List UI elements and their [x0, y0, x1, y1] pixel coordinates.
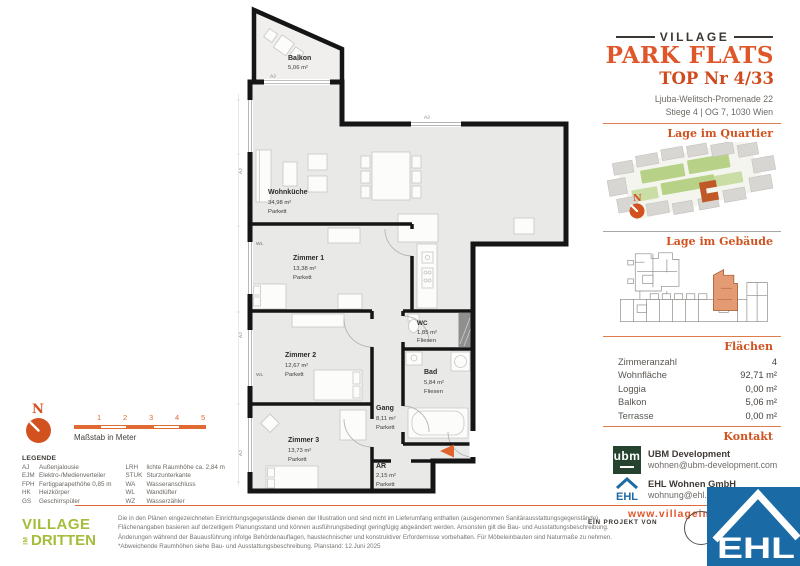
scale-bar: 1 2 3 4 5 Maßstab in Meter	[74, 413, 206, 442]
legend: LEGENDE AJAußenjalousie EJMElektro-/Medi…	[22, 455, 225, 506]
legend-text: Wasserzähler	[146, 498, 184, 505]
legend-text: Sturzunterkante	[146, 472, 190, 479]
ehl-logo-text: EHL	[717, 532, 795, 565]
compass-north-icon	[25, 417, 52, 444]
section-title-kontakt: Kontakt	[603, 430, 781, 443]
section-title-flaechen: Flächen	[603, 340, 781, 353]
svg-text:Parkett: Parkett	[268, 209, 287, 215]
svg-text:Fliesen: Fliesen	[417, 338, 436, 344]
quartier-map: N	[603, 142, 781, 226]
unit-title: TOP Nr 4/33	[603, 69, 781, 88]
expose-page: AJ AJ AJ AJ AJ WL WL Balkon 5,06 m² Wohn…	[0, 0, 800, 566]
svg-text:Zimmer 2: Zimmer 2	[285, 352, 316, 359]
svg-text:8,11 m²: 8,11 m²	[376, 416, 396, 422]
plan-compass: N	[22, 402, 54, 449]
address-line2: Stiege 4 | OG 7, 1030 Wien	[603, 106, 773, 118]
brand-title: PARK FLATS	[603, 44, 781, 67]
svg-text:12,67 m²: 12,67 m²	[285, 363, 308, 369]
areas-table: Zimmeranzahl4 Wohnfläche92,71 m² Loggia0…	[603, 357, 781, 421]
svg-text:Gang: Gang	[376, 405, 394, 412]
legend-abbr: STUK	[125, 472, 146, 480]
svg-text:Zimmer 3: Zimmer 3	[288, 437, 319, 444]
highlighted-unit	[713, 269, 737, 310]
scale-segments	[74, 425, 206, 429]
ubm-name: UBM Development	[648, 449, 777, 459]
scale-label: Maßstab in Meter	[74, 433, 206, 442]
svg-text:AR: AR	[376, 463, 386, 470]
svg-text:Parkett: Parkett	[288, 457, 307, 463]
balcony-floor	[254, 10, 342, 82]
legend-title: LEGENDE	[22, 455, 225, 462]
area-label: Terrasse	[618, 411, 654, 421]
project-by-label: EIN PROJEKT VON	[588, 519, 657, 526]
room-label-gang: Gang 8,11 m² Parkett	[376, 405, 396, 431]
aj-label: AJ	[424, 115, 430, 121]
area-value: 5,06 m²	[745, 397, 777, 407]
svg-text:1,85 m²: 1,85 m²	[417, 330, 437, 336]
aj-label: AJ	[238, 450, 244, 456]
legend-abbr: EJM	[22, 472, 39, 480]
legend-abbr: AJ	[22, 464, 39, 472]
area-row: Zimmeranzahl4	[618, 357, 777, 367]
area-label: Loggia	[618, 384, 646, 394]
svg-text:Parkett: Parkett	[285, 372, 304, 378]
svg-text:Parkett: Parkett	[376, 425, 395, 431]
svg-text:Bad: Bad	[424, 369, 437, 376]
wl-label: WL	[256, 372, 264, 378]
ehl-logo-large: EHL	[707, 487, 800, 566]
legend-text: Fertigparapethöhe 0,85 m	[39, 481, 111, 488]
village-im-dritten-logo: VILLAGE IM DRITTEN	[22, 517, 96, 548]
svg-text:5,06 m²: 5,06 m²	[288, 65, 308, 71]
aj-label: AJ	[238, 332, 244, 338]
floor-plan: AJ AJ AJ AJ AJ WL WL Balkon 5,06 m² Wohn…	[226, 4, 574, 502]
area-value: 4	[772, 357, 777, 367]
svg-text:34,98 m²: 34,98 m²	[268, 200, 291, 206]
divider	[603, 123, 781, 124]
svg-text:Fliesen: Fliesen	[424, 389, 443, 395]
svg-text:2,15 m²: 2,15 m²	[376, 473, 396, 479]
legend-text: Wasseranschluss	[146, 481, 195, 488]
scale-tick: 4	[175, 413, 179, 422]
svg-text:Zimmer 1: Zimmer 1	[293, 255, 324, 262]
compass-n-label: N	[22, 402, 54, 417]
legend-text: Elektro-/Medienverteiler	[39, 472, 106, 479]
ehl-logo-small: EHL	[613, 476, 641, 504]
legend-abbr: WL	[125, 489, 146, 497]
scale-ticks: 1 2 3 4 5	[74, 413, 206, 422]
legend-column-2: LRHlichte Raumhöhe ca. 2,84 m STUKSturzu…	[125, 464, 224, 506]
svg-text:Parkett: Parkett	[376, 482, 395, 488]
shaft	[459, 313, 472, 347]
brand-line	[616, 36, 655, 38]
legend-abbr: HK	[22, 489, 39, 497]
divider	[603, 231, 781, 232]
ubm-email[interactable]: wohnen@ubm-development.com	[648, 460, 777, 470]
area-row: Terrasse0,00 m²	[618, 411, 777, 421]
footer-divider	[75, 505, 781, 506]
legend-text: lichte Raumhöhe ca. 2,84 m	[146, 464, 224, 471]
brand-line	[734, 36, 773, 38]
svg-text:5,84 m²: 5,84 m²	[424, 380, 444, 386]
info-panel: VILLAGE PARK FLATS TOP Nr 4/33 Ljuba-Wel…	[603, 0, 781, 520]
svg-text:WC: WC	[417, 320, 428, 327]
divider	[603, 336, 781, 337]
section-title-gebaeude: Lage im Gebäude	[603, 235, 781, 248]
area-value: 0,00 m²	[745, 384, 777, 394]
svg-text:Balkon: Balkon	[288, 55, 311, 62]
aj-label: AJ	[238, 168, 244, 174]
legend-abbr: LRH	[125, 464, 146, 472]
scale-tick: 3	[149, 413, 153, 422]
svg-text:Parkett: Parkett	[293, 275, 312, 281]
vid-logo-im: IM	[23, 536, 30, 545]
legend-text: Heizkörper	[39, 489, 69, 496]
legend-column-1: AJAußenjalousie EJMElektro-/Medienvertei…	[22, 464, 111, 506]
legend-abbr: FPH	[22, 481, 39, 489]
scale-tick: 2	[123, 413, 127, 422]
svg-text:Wohnküche: Wohnküche	[268, 189, 308, 196]
area-label: Wohnfläche	[618, 370, 667, 380]
legend-text: Außenjalousie	[39, 464, 79, 471]
vid-logo-line1: VILLAGE	[22, 517, 96, 532]
area-value: 0,00 m²	[745, 411, 777, 421]
scale-tick: 5	[201, 413, 205, 422]
disclaimer-text: Die in den Plänen eingezeichneten Einric…	[118, 514, 638, 551]
area-row: Loggia0,00 m²	[618, 384, 777, 394]
area-value: 92,71 m²	[740, 370, 777, 380]
address-line1: Ljuba-Welitsch-Promenade 22	[603, 93, 773, 105]
building-map	[603, 251, 781, 331]
svg-text:EHL: EHL	[616, 491, 638, 503]
map-compass-n-label: N	[633, 193, 642, 204]
section-title-quartier: Lage im Quartier	[603, 127, 781, 140]
divider	[603, 426, 781, 427]
area-row: Wohnfläche92,71 m²	[618, 370, 777, 380]
legend-text: Wandlüfter	[146, 489, 176, 496]
legend-text: Geschirrspüler	[39, 498, 80, 505]
legend-abbr: GS	[22, 498, 39, 506]
area-row: Balkon5,06 m²	[618, 397, 777, 407]
legend-abbr: WA	[125, 481, 146, 489]
address: Ljuba-Welitsch-Promenade 22 Stiege 4 | O…	[603, 93, 781, 117]
area-label: Balkon	[618, 397, 646, 407]
ubm-logo: ubm	[613, 446, 641, 474]
svg-text:13,38 m²: 13,38 m²	[293, 266, 316, 272]
aj-label: AJ	[270, 74, 276, 80]
area-label: Zimmeranzahl	[618, 357, 677, 367]
svg-text:13,73 m²: 13,73 m²	[288, 448, 311, 454]
contact-ubm: ubm UBM Development wohnen@ubm-developme…	[613, 446, 781, 474]
scale-tick: 1	[97, 413, 101, 422]
vid-logo-line2: DRITTEN	[31, 533, 96, 548]
wl-label: WL	[256, 241, 264, 247]
dimension-chain	[237, 94, 241, 486]
